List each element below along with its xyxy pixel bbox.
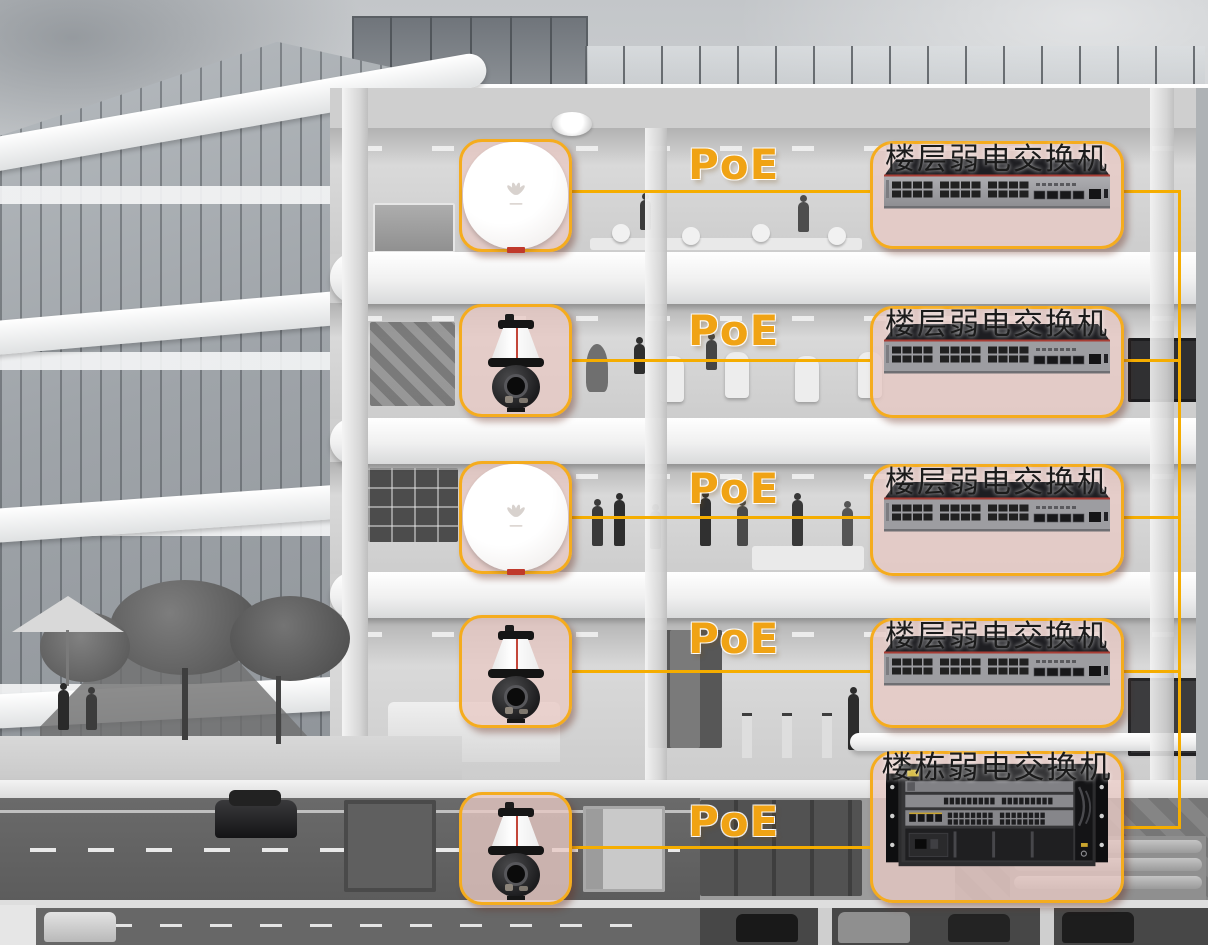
ap-mount [507,569,525,575]
road-dashed-line [60,924,660,927]
chair [612,224,630,242]
floor-switch-box: 楼层弱电交换机 [870,306,1124,418]
turnstile [742,716,752,758]
structural-column [342,88,368,792]
tree [230,596,350,681]
floor-switch-box: 楼层弱电交换机 [870,141,1124,249]
poe-label: PoE [688,308,798,356]
poe-cable-line [572,359,872,362]
uplink-stub-line [1122,826,1181,829]
lounge-chair [795,356,819,402]
uplink-stub-line [1124,516,1181,519]
sculpture [370,322,455,406]
switch-label: 楼层弱电交换机 [885,144,1109,176]
person-silhouette [86,694,97,730]
person-silhouette [592,506,603,546]
poe-cable-line [572,516,872,519]
wall-screen [373,203,455,253]
person-silhouette [798,202,809,232]
garage-pillar [1040,908,1054,945]
uplink-trunk-line [1178,190,1181,829]
poe-cable-line [572,190,872,193]
plant [586,344,608,392]
building-network-diagram: PoE PoE PoE PoE PoE [0,0,1208,945]
huawei-logo-icon [502,181,530,207]
tree-trunk [276,676,281,744]
poe-label: PoE [688,799,798,847]
ceiling-lamp [552,112,592,136]
poe-label: PoE [688,466,798,514]
poe-cable-line [572,670,872,673]
switch-label: 楼层弱电交换机 [885,621,1109,653]
ap-mount [507,247,525,253]
floor-slab [330,418,1208,464]
ptz-camera-box [459,792,572,905]
building-switch-box: 楼栋弱电交换机 [870,751,1124,903]
huawei-logo-icon [502,503,530,529]
ptz-camera-box [459,304,572,417]
person-silhouette [614,500,625,546]
wireless-ap-icon [463,464,568,571]
parked-car [736,914,798,942]
machine-room-sign [344,800,436,892]
floor-switch-box: 楼层弱电交换机 [870,464,1124,576]
ptz-camera-icon [483,802,549,900]
parked-car [838,912,910,943]
switch-label: 楼栋弱电交换机 [882,752,1113,784]
ptz-camera-box [459,615,572,728]
structural-column [645,128,667,780]
electrical-cabinet [583,806,665,892]
poe-label: PoE [688,616,798,664]
chair [828,227,846,245]
uplink-stub-line [1124,670,1181,673]
floor-slab [330,252,1208,304]
person-silhouette [58,690,69,730]
uplink-stub-line [1124,190,1181,193]
chair [752,224,770,242]
car [44,912,116,942]
ptz-camera-icon [483,314,549,412]
office-desk [590,238,862,250]
floor-slab [330,572,1208,618]
turnstile [822,716,832,758]
person-silhouette [842,508,853,546]
counter [752,546,864,570]
uplink-stub-line [1124,359,1181,362]
parked-car [1062,912,1134,943]
car [215,800,297,838]
turnstile [782,716,792,758]
curb [0,905,36,945]
structural-column [1150,88,1174,792]
switch-label: 楼层弱电交换机 [885,309,1109,341]
photo-wall [368,468,458,542]
umbrella-pole [66,630,69,686]
wireless-ap-box [459,461,572,574]
parked-car [948,914,1010,942]
wireless-ap-box [459,139,572,252]
chair [682,227,700,245]
floor-switch-box: 楼层弱电交换机 [870,618,1124,728]
poe-label: PoE [688,142,798,190]
tree-trunk [182,668,188,740]
ptz-camera-icon [483,625,549,723]
wireless-ap-icon [463,142,568,249]
building-edge [1196,88,1208,792]
switch-label: 楼层弱电交换机 [885,467,1109,499]
garage-pillar [818,908,832,945]
